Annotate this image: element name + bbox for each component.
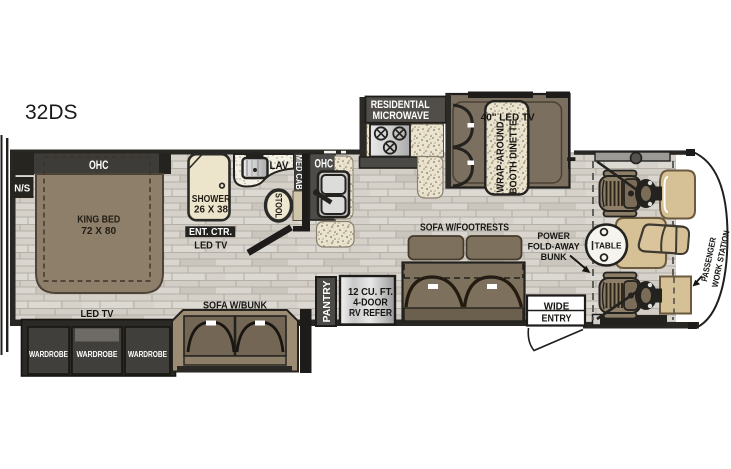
svg-text:RV REFER: RV REFER	[349, 308, 392, 319]
svg-text:SOFA W/FOOTRESTS: SOFA W/FOOTRESTS	[420, 222, 509, 233]
svg-text:MICROWAVE: MICROWAVE	[373, 110, 430, 122]
svg-text:POWER: POWER	[537, 231, 570, 242]
svg-text:KING BED: KING BED	[77, 214, 120, 226]
svg-text:N/S: N/S	[14, 184, 30, 195]
svg-text:WARDROBE: WARDROBE	[29, 350, 69, 359]
svg-text:72 X 80: 72 X 80	[81, 225, 116, 237]
svg-text:40" LED TV: 40" LED TV	[481, 113, 535, 124]
svg-text:TABLE: TABLE	[595, 241, 622, 251]
svg-text:32DS: 32DS	[25, 101, 78, 124]
svg-text:WIDE: WIDE	[544, 302, 570, 313]
svg-text:OHC: OHC	[315, 159, 334, 171]
svg-text:ENTRY: ENTRY	[542, 313, 572, 324]
svg-text:26 X 38: 26 X 38	[194, 204, 229, 215]
svg-text:BOOTH DINETTE: BOOTH DINETTE	[508, 120, 520, 194]
svg-text:STOOL: STOOL	[274, 193, 284, 218]
svg-text:WARDROBE: WARDROBE	[77, 350, 119, 359]
svg-text:12 CU. FT.: 12 CU. FT.	[348, 287, 393, 298]
svg-text:ENT. CTR.: ENT. CTR.	[189, 227, 232, 238]
svg-text:PANTRY: PANTRY	[321, 281, 333, 323]
svg-text:LED TV: LED TV	[194, 240, 227, 252]
svg-text:LAV: LAV	[270, 160, 290, 172]
svg-text:FOLD-AWAY: FOLD-AWAY	[528, 241, 581, 252]
svg-text:LED TV: LED TV	[81, 308, 114, 320]
svg-text:BUNK: BUNK	[541, 252, 567, 263]
svg-text:SHOWER: SHOWER	[192, 194, 231, 205]
svg-text:WRAP-AROUND: WRAP-AROUND	[495, 121, 507, 192]
svg-text:OHC: OHC	[89, 158, 109, 172]
svg-text:4-DOOR: 4-DOOR	[353, 298, 388, 309]
svg-text:WARDROBE: WARDROBE	[128, 350, 168, 359]
